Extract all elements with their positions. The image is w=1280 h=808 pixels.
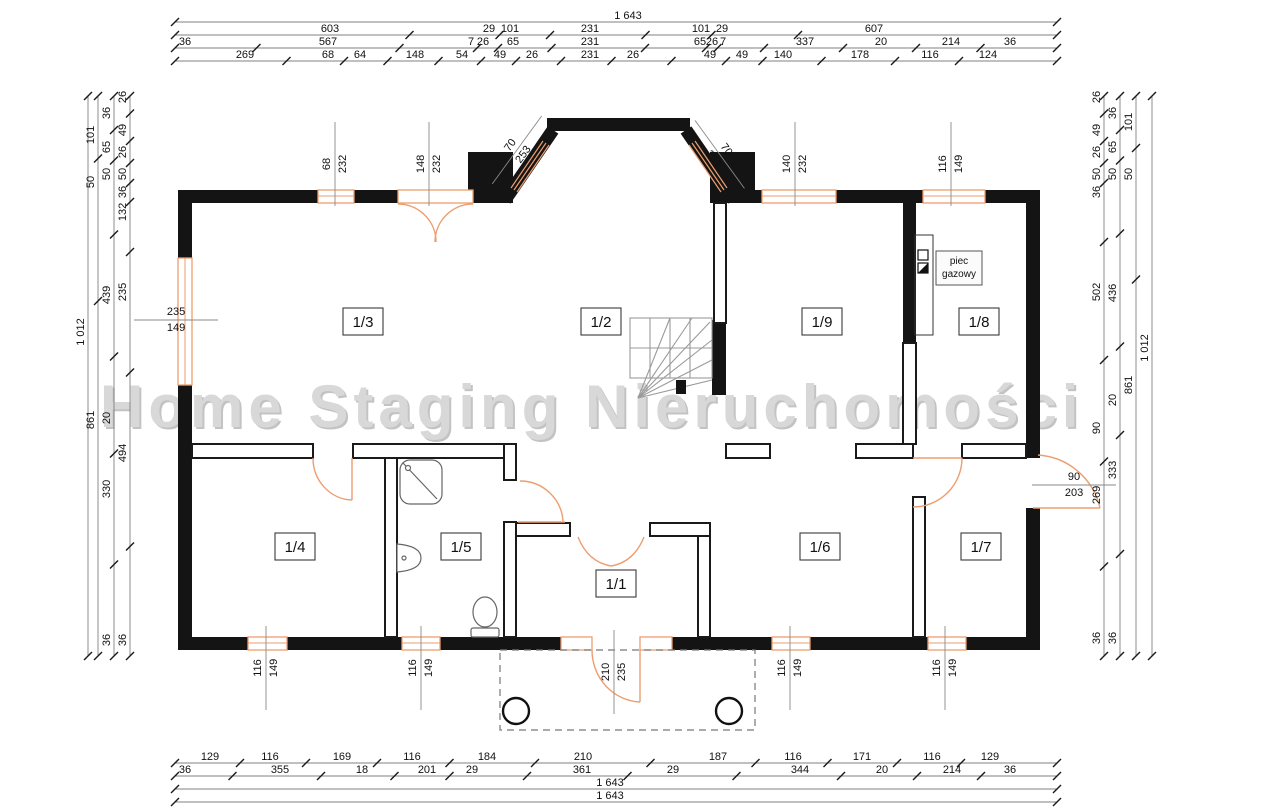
wall-bottom xyxy=(810,637,928,650)
dimension-label: 49 xyxy=(494,49,506,61)
interior-wall xyxy=(726,444,770,458)
opening-size-label: 235149 xyxy=(134,306,218,334)
dimension-label: 1 643 xyxy=(614,10,642,22)
dimension-label: 36 xyxy=(1091,632,1103,644)
dimension-label: 1 012 xyxy=(1139,334,1151,362)
dimension-label: 20 xyxy=(1107,394,1119,406)
interior-wall xyxy=(903,343,916,444)
dimension-label: 1/8 xyxy=(969,314,990,331)
dimension-label: 231 xyxy=(581,49,599,61)
dimension-label: 49 xyxy=(117,124,129,136)
dimension-label: 116 xyxy=(931,659,943,677)
dimension-label: 1/2 xyxy=(591,314,612,331)
dimension-label: 90 xyxy=(1068,471,1080,483)
dimension-label: 90 xyxy=(1091,422,1103,434)
dimension-label: 36 xyxy=(1107,107,1119,119)
dimension-label: 7 xyxy=(468,36,474,48)
dimension-label: 68 xyxy=(322,49,334,61)
room-label: 1/2 xyxy=(581,308,621,335)
room-label: 1/3 xyxy=(343,308,383,335)
dimension-label: 149 xyxy=(167,322,185,334)
dimension-label: 333 xyxy=(1107,461,1119,479)
dimension-label: 36 xyxy=(101,634,113,646)
door-swing xyxy=(520,481,563,521)
wall-right xyxy=(1026,190,1040,458)
dimension-label: 148 xyxy=(406,49,424,61)
double-door-swing xyxy=(578,537,611,566)
dimension-label: 235 xyxy=(616,663,628,681)
furnace-label-line1: piec xyxy=(950,256,968,267)
room-label: 1/9 xyxy=(802,308,842,335)
dimension-label: 129 xyxy=(981,751,999,763)
dimension-label: 20 xyxy=(876,764,888,776)
dimension-label: 116 xyxy=(407,659,419,677)
interior-wall xyxy=(504,444,516,480)
dimension-label: 607 xyxy=(865,23,883,35)
dimension-label: 210 xyxy=(574,751,592,763)
dimension-label: 1/4 xyxy=(285,539,306,556)
dimension-label: 7 xyxy=(720,36,726,48)
dimension-label: 184 xyxy=(478,751,496,763)
entrance-sidelight xyxy=(561,637,592,650)
dimension-label: 29 xyxy=(716,23,728,35)
dimension-label: 36 xyxy=(1107,632,1119,644)
dimension-label: 36 xyxy=(1004,36,1016,48)
room-label: 1/5 xyxy=(441,533,481,560)
dimension-label: 1 643 xyxy=(596,777,624,789)
wall-top xyxy=(354,190,398,203)
dimension-label: 116 xyxy=(776,659,788,677)
furnace-label-line2: gazowy xyxy=(942,269,976,280)
dimension-label: 361 xyxy=(573,764,591,776)
dimension-label: 26 xyxy=(1091,91,1103,103)
dimension-label: 26 xyxy=(117,146,129,158)
toilet-tank xyxy=(471,628,499,637)
room-label: 1/1 xyxy=(596,570,636,597)
floor-plan-drawing: piec gazowy 1 64360329101231101296073656… xyxy=(0,0,1280,808)
interior-wall xyxy=(504,522,516,637)
dimension-label: 210 xyxy=(600,663,612,681)
dimension-label: 50 xyxy=(117,168,129,180)
dimension-label: 65 xyxy=(1107,141,1119,153)
dimension-label: 201 xyxy=(418,764,436,776)
dimension-label: 29 xyxy=(466,764,478,776)
dimension-label: 502 xyxy=(1091,283,1103,301)
wall-bottom xyxy=(440,637,561,650)
shower-drain xyxy=(406,466,411,471)
dimension-label: 232 xyxy=(797,155,809,173)
dimension-label: 344 xyxy=(791,764,809,776)
dimension-label: 129 xyxy=(201,751,219,763)
dimension-label: 116 xyxy=(937,155,949,173)
dimension-label: 65 xyxy=(507,36,519,48)
wall-bottom xyxy=(178,637,248,650)
dimension-label: 50 xyxy=(1123,168,1135,180)
dimension-label: 26 xyxy=(1091,146,1103,158)
washbasin xyxy=(397,544,421,572)
dimension-label: 1 643 xyxy=(596,790,624,802)
porch-column xyxy=(716,698,742,724)
dimension-label: 20 xyxy=(101,412,113,424)
dimension-label: 65 xyxy=(101,141,113,153)
dimension-label: 203 xyxy=(1065,487,1083,499)
dimension-label: 101 xyxy=(85,126,97,144)
dimension-label: 1/5 xyxy=(451,539,472,556)
dimension-label: 50 xyxy=(1091,168,1103,180)
wall-bottom xyxy=(287,637,402,650)
dimension-label: 269 xyxy=(1091,486,1103,504)
dimension-label: 116 xyxy=(921,49,939,61)
dimension-label: 101 xyxy=(1123,113,1135,131)
dimension-label: 232 xyxy=(337,155,349,173)
dimension-label: 50 xyxy=(85,176,97,188)
dimension-label: 1 012 xyxy=(75,318,87,346)
dimension-label: 149 xyxy=(947,659,959,677)
french-door-swing xyxy=(398,204,436,242)
dimension-label: 169 xyxy=(333,751,351,763)
dimension-label: 18 xyxy=(356,764,368,776)
dimension-label: 861 xyxy=(85,411,97,429)
dimension-label: 140 xyxy=(781,155,793,173)
opening-size-label: 210235 xyxy=(600,630,628,714)
toilet-bowl xyxy=(473,597,497,627)
dimension-label: 232 xyxy=(431,155,443,173)
dimension-label: 149 xyxy=(953,155,965,173)
floor-plan-page: Home Staging Nieruchomości xyxy=(0,0,1280,808)
dimension-label: 65 xyxy=(694,36,706,48)
dimension-label: 124 xyxy=(979,49,997,61)
double-door-swing xyxy=(611,537,644,566)
dimension-label: 148 xyxy=(415,155,427,173)
dimension-label: 439 xyxy=(101,286,113,304)
dimension-label: 567 xyxy=(319,36,337,48)
dimension-label: 269 xyxy=(236,49,254,61)
opening-size-label: 90203 xyxy=(1032,471,1116,499)
dimension-label: 29 xyxy=(667,764,679,776)
porch-column xyxy=(503,698,529,724)
furnace-closet-wall xyxy=(903,203,916,343)
dimension-label: 235 xyxy=(117,283,129,301)
dimension-label: 101 xyxy=(692,23,710,35)
furnace-label: piec gazowy xyxy=(936,251,982,285)
interior-wall xyxy=(856,444,913,458)
dimension-label: 116 xyxy=(252,659,264,677)
dimension-label: 54 xyxy=(456,49,468,61)
interior-wall xyxy=(516,523,570,536)
dimension-label: 116 xyxy=(403,751,421,763)
porch xyxy=(500,650,755,730)
dimension-label: 49 xyxy=(736,49,748,61)
dimension-label: 64 xyxy=(354,49,366,61)
dimension-label: 50 xyxy=(101,168,113,180)
room-label: 1/8 xyxy=(959,308,999,335)
dimension-label: 68 xyxy=(321,158,333,170)
dimension-label: 231 xyxy=(581,23,599,35)
dimension-label: 116 xyxy=(261,751,279,763)
dimension-label: 1/6 xyxy=(810,539,831,556)
dimension-label: 355 xyxy=(271,764,289,776)
room-label: 1/7 xyxy=(961,533,1001,560)
dimension-label: 36 xyxy=(179,764,191,776)
dimension-label: 214 xyxy=(942,36,960,48)
dimension-label: 26 xyxy=(526,49,538,61)
dimension-label: 214 xyxy=(943,764,961,776)
interior-wall xyxy=(192,444,313,458)
french-door-frame xyxy=(398,190,473,203)
dimension-label: 36 xyxy=(179,36,191,48)
dimension-label: 36 xyxy=(101,107,113,119)
dimension-label: 1/1 xyxy=(606,576,627,593)
interior-wall xyxy=(714,203,726,323)
bay-top-wall xyxy=(547,118,690,131)
stair-newel xyxy=(676,380,686,394)
dimension-label: 20 xyxy=(875,36,887,48)
dimension-label: 337 xyxy=(796,36,814,48)
dimension-label: 36 xyxy=(117,186,129,198)
entrance-sidelight xyxy=(640,637,672,650)
interior-wall xyxy=(913,497,925,637)
dimension-label: 231 xyxy=(581,36,599,48)
wall-top xyxy=(178,190,318,203)
interior-wall xyxy=(698,536,710,637)
dimension-label: 861 xyxy=(1123,376,1135,394)
dimension-label: 49 xyxy=(1091,124,1103,136)
dimension-label: 29 xyxy=(483,23,495,35)
washbasin-drain xyxy=(402,556,406,560)
dimension-label: 36 xyxy=(117,634,129,646)
dimension-label: 1/7 xyxy=(971,539,992,556)
wall-left xyxy=(178,385,192,650)
interior-wall xyxy=(650,523,710,536)
dimension-label: 178 xyxy=(851,49,869,61)
interior-wall xyxy=(353,444,504,458)
wall-bottom xyxy=(672,637,772,650)
dimension-label: 436 xyxy=(1107,284,1119,302)
interior-wall xyxy=(385,458,397,637)
dimension-label: 36 xyxy=(1091,186,1103,198)
dimension-label: 603 xyxy=(321,23,339,35)
wall-right xyxy=(1026,508,1040,650)
wall-bottom xyxy=(966,637,1040,650)
furnace-symbol xyxy=(918,250,928,260)
interior-wall xyxy=(962,444,1026,458)
dimension-label: 1/9 xyxy=(812,314,833,331)
dimension-label: 140 xyxy=(774,49,792,61)
dimension-label: 330 xyxy=(101,480,113,498)
dimension-label: 116 xyxy=(923,751,941,763)
dimension-label: 49 xyxy=(704,49,716,61)
room-label: 1/6 xyxy=(800,533,840,560)
dimension-label: 36 xyxy=(1004,764,1016,776)
dimension-label: 187 xyxy=(709,751,727,763)
dimension-label: 235 xyxy=(167,306,185,318)
fixtures: piec gazowy xyxy=(397,235,982,637)
dimension-label: 171 xyxy=(853,751,871,763)
door-swing xyxy=(313,458,352,500)
windows xyxy=(178,141,985,650)
dimension-label: 26 xyxy=(117,91,129,103)
wall-top xyxy=(836,190,923,203)
dimension-label: 50 xyxy=(1107,168,1119,180)
room-label: 1/4 xyxy=(275,533,315,560)
dimension-label: 26 xyxy=(627,49,639,61)
dimension-label: 116 xyxy=(784,751,802,763)
dimension-label: 1/3 xyxy=(353,314,374,331)
dimension-label: 149 xyxy=(423,659,435,677)
stairs xyxy=(630,318,712,398)
stair-wall xyxy=(712,320,726,395)
dimension-label: 494 xyxy=(117,444,129,462)
french-door-swing xyxy=(435,204,473,242)
dimension-label: 149 xyxy=(792,659,804,677)
dimension-label: 101 xyxy=(501,23,519,35)
dimension-label: 149 xyxy=(268,659,280,677)
